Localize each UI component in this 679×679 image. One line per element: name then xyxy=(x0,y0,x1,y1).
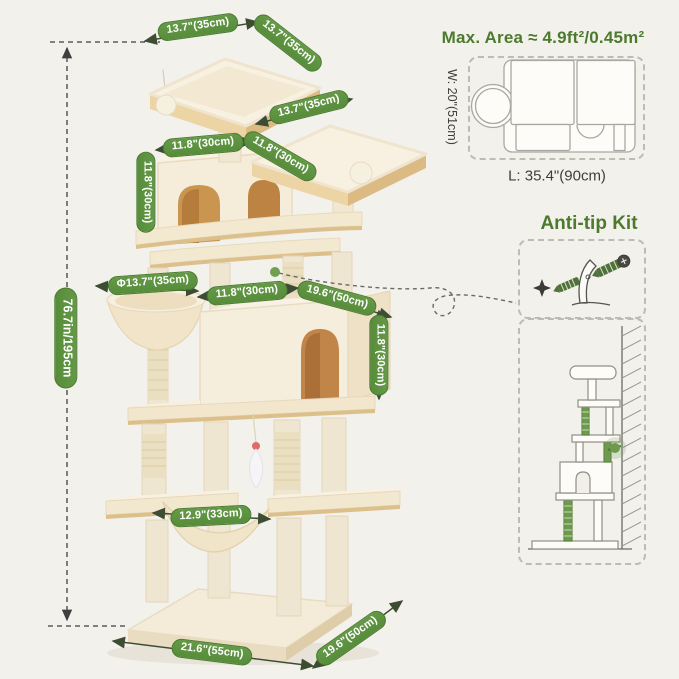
footprint-width-label: W: 20"(51cm) xyxy=(445,69,459,145)
dim-lower-condo-height: 11.8"(30cm) xyxy=(370,315,389,396)
pompom-toy xyxy=(156,95,176,115)
anti-tip-hardware-illustration xyxy=(520,241,644,317)
long-screw-icon xyxy=(590,253,632,281)
anti-tip-installation-illustration xyxy=(520,320,644,563)
max-area-title: Max. Area ≈ 4.9ft²/0.45m² xyxy=(442,28,645,48)
anchor-point-highlight xyxy=(604,437,626,459)
anti-tip-installation-box xyxy=(518,318,646,565)
dim-total-height: 76.7in/195cm xyxy=(55,287,78,388)
feather-teaser-toy xyxy=(250,414,263,488)
lower-mid-posts xyxy=(142,418,346,504)
anti-tip-title: Anti-tip Kit xyxy=(540,213,637,235)
anchor-screw-icon xyxy=(552,277,581,295)
footprint-top-view xyxy=(470,58,643,158)
sparkle-icon xyxy=(533,279,551,297)
pompom-toy xyxy=(350,162,372,184)
footprint-diagram-box xyxy=(468,56,645,160)
anti-tip-anchor-dot xyxy=(270,267,280,277)
basket xyxy=(107,288,205,350)
dim-upper-condo-height: 11.8"(30cm) xyxy=(137,152,156,233)
footprint-length-label: L: 35.4"(90cm) xyxy=(508,168,606,185)
anti-tip-hardware-box xyxy=(518,239,646,319)
product-dimension-diagram: 13.7"(35cm) 13.7"(35cm) 13.7"(35cm) 11.8… xyxy=(0,0,679,679)
mini-cat-tree-sketch xyxy=(532,366,620,549)
